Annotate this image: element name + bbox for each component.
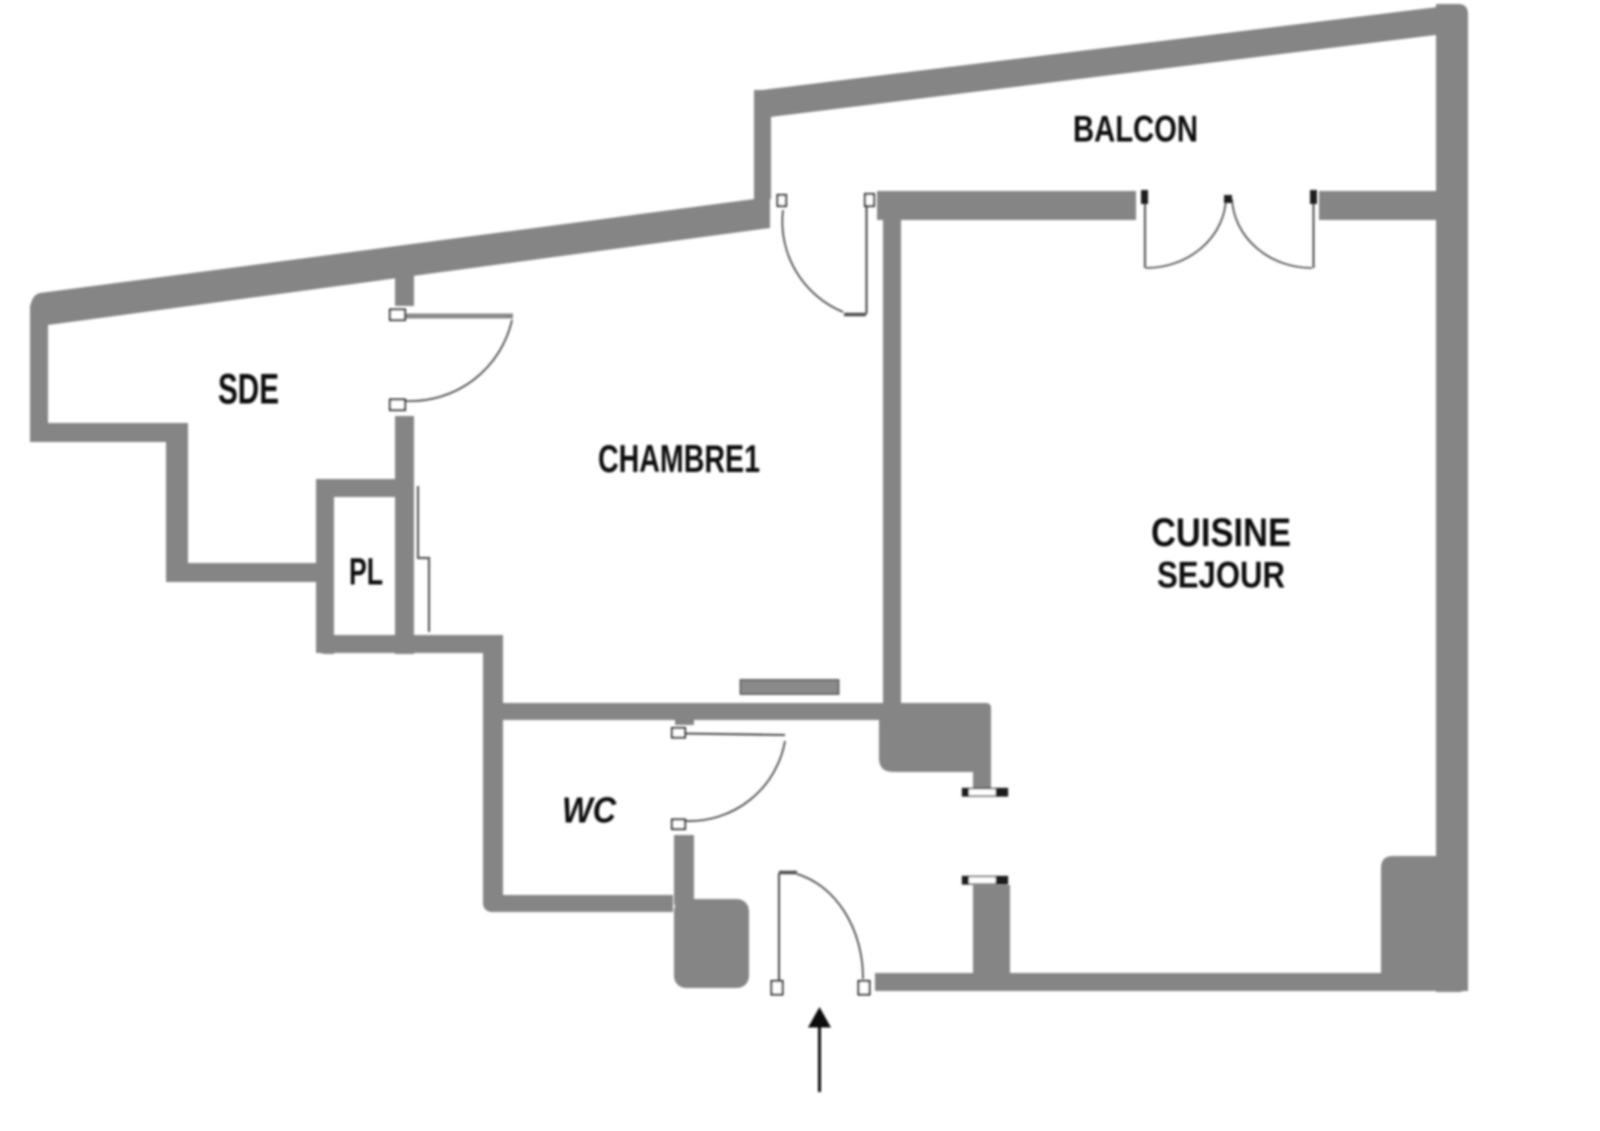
svg-text:BALCON: BALCON bbox=[1073, 109, 1198, 150]
svg-text:SDE: SDE bbox=[218, 366, 279, 414]
svg-text:SEJOUR: SEJOUR bbox=[1157, 555, 1285, 596]
svg-text:CUISINE: CUISINE bbox=[1151, 511, 1291, 555]
svg-text:PL: PL bbox=[349, 552, 383, 594]
svg-text:WC: WC bbox=[562, 790, 617, 831]
svg-text:CHAMBRE1: CHAMBRE1 bbox=[598, 438, 760, 481]
